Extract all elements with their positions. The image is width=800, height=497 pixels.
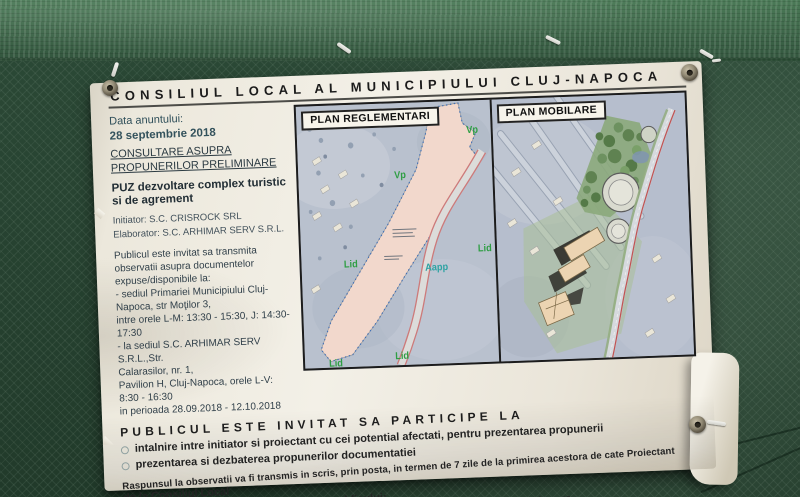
fence-top-band: [0, 0, 800, 61]
photo-scene: CONSILIUL LOCAL AL MUNICIPIULUI CLUJ-NAP…: [0, 0, 800, 497]
zip-tie: [111, 62, 119, 78]
zip-tie: [712, 58, 721, 62]
grommet-hole: [107, 85, 113, 91]
plan-mobilare-panel: PLAN MOBILARE: [489, 93, 694, 362]
zone-label-lid: Lid: [395, 350, 409, 362]
notice-poster: CONSILIUL LOCAL AL MUNICIPIULUI CLUJ-NAP…: [90, 61, 717, 491]
poster-content: CONSILIUL LOCAL AL MUNICIPIULUI CLUJ-NAP…: [90, 61, 719, 497]
plan-maps: Vp Vp Lid Lid Lid Lid Aapp PLAN REGLEMEN…: [294, 90, 696, 370]
zone-label-lid: Lid: [478, 243, 492, 255]
zone-label-vp: Vp: [394, 170, 406, 182]
grommet-hole: [686, 69, 692, 75]
initiator-elaborator: Initiator: S.C. CRISROCK SRL Elaborator:…: [113, 208, 290, 242]
grommet-top-left: [102, 80, 118, 96]
zone-label-aapp: Aapp: [425, 262, 449, 274]
content-row: Data anuntului: 28 septembrie 2018 CONSU…: [109, 90, 698, 418]
invitation-paragraph: Publicul este invitat sa transmita obser…: [114, 243, 296, 418]
plan-mobilare-map: [491, 93, 694, 362]
grommet-top-right: [681, 64, 698, 81]
announcement-date: Data anuntului: 28 septembrie 2018: [109, 109, 286, 144]
bullet-circle-icon: [121, 462, 129, 470]
grommet-bottom-right: [689, 416, 706, 433]
zone-label-vp: Vp: [466, 124, 478, 136]
bullet-circle-icon: [121, 446, 129, 454]
grommet-hole: [694, 421, 700, 427]
plan-reglementari-panel: Vp Vp Lid Lid Lid Lid Aapp PLAN REGLEMEN…: [296, 100, 499, 369]
notice-left-column: Data anuntului: 28 septembrie 2018 CONSU…: [109, 105, 296, 418]
consultation-heading: CONSULTARE ASUPRA PROPUNERILOR PRELIMINA…: [110, 142, 287, 176]
puz-title: PUZ dezvoltare complex turistic si de ag…: [111, 176, 288, 210]
plan-mobilare-label: PLAN MOBILARE: [496, 100, 606, 123]
zone-label-lid: Lid: [344, 259, 358, 271]
zone-label-lid: Lid: [329, 358, 343, 369]
plan-reglementari-map: Vp Vp Lid Lid Lid Lid Aapp: [296, 100, 499, 369]
